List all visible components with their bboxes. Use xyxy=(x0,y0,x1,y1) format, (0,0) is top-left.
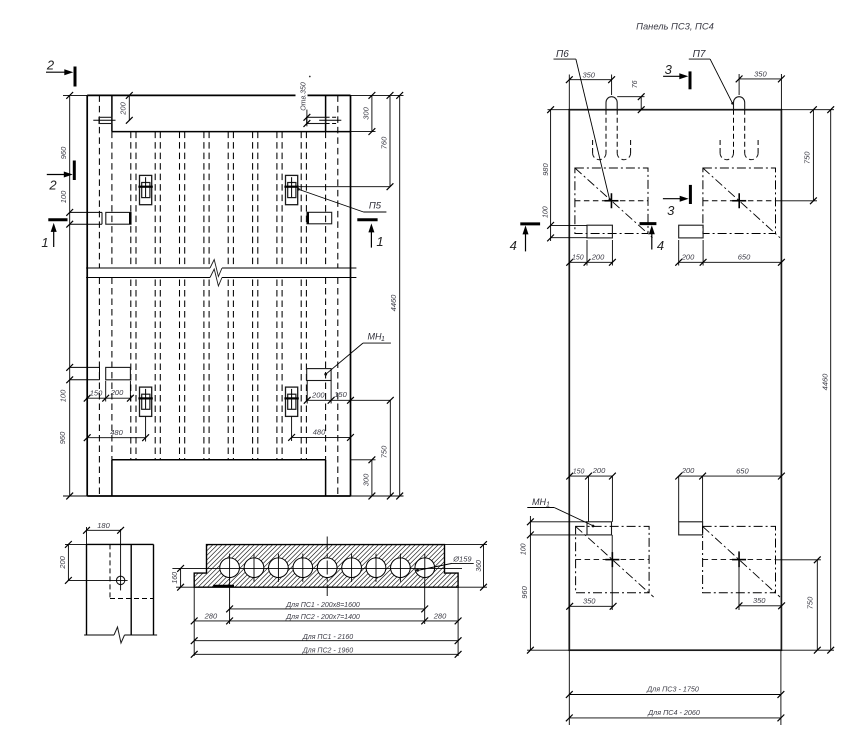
svg-text:Панель ПС3, ПС4: Панель ПС3, ПС4 xyxy=(636,20,714,31)
svg-text:180: 180 xyxy=(97,521,110,530)
svg-text:4: 4 xyxy=(657,238,664,253)
svg-text:2: 2 xyxy=(46,58,55,73)
svg-text:280: 280 xyxy=(433,612,447,621)
svg-text:300: 300 xyxy=(361,106,370,119)
svg-text:350: 350 xyxy=(583,597,596,606)
svg-text:750: 750 xyxy=(805,596,814,609)
svg-text:1: 1 xyxy=(41,235,48,250)
svg-text:76: 76 xyxy=(632,80,639,88)
svg-text:650: 650 xyxy=(738,253,751,262)
svg-text:МН: МН xyxy=(532,497,546,507)
svg-text:160: 160 xyxy=(172,572,179,584)
svg-text:200: 200 xyxy=(681,466,695,475)
svg-text:3: 3 xyxy=(665,62,673,77)
svg-text:Для ПС2 - 200х7=1400: Для ПС2 - 200х7=1400 xyxy=(285,614,360,621)
svg-text:Для ПС1 - 200х8=1600: Для ПС1 - 200х8=1600 xyxy=(285,602,360,609)
svg-text:100: 100 xyxy=(542,206,549,218)
svg-text:960: 960 xyxy=(58,431,67,444)
svg-text:480: 480 xyxy=(110,428,123,437)
svg-text:1: 1 xyxy=(376,234,383,249)
svg-text:200: 200 xyxy=(591,253,605,262)
svg-text:960: 960 xyxy=(520,585,529,598)
svg-text:П5: П5 xyxy=(369,201,382,212)
svg-text:980: 980 xyxy=(541,163,550,176)
svg-text:Ø159: Ø159 xyxy=(452,555,472,564)
svg-text:750: 750 xyxy=(802,151,811,164)
svg-text:200: 200 xyxy=(119,101,128,115)
svg-text:П6: П6 xyxy=(556,49,569,60)
svg-text:760: 760 xyxy=(379,136,388,149)
svg-text:350: 350 xyxy=(754,70,767,79)
svg-text:200: 200 xyxy=(110,388,124,397)
svg-text:Для ПС4 - 2060: Для ПС4 - 2060 xyxy=(647,708,700,717)
svg-text:Отв.350: Отв.350 xyxy=(301,82,308,111)
svg-text:200: 200 xyxy=(592,466,606,475)
svg-text:3: 3 xyxy=(667,203,675,218)
svg-text:100: 100 xyxy=(521,543,528,555)
svg-text:МН: МН xyxy=(368,332,382,342)
svg-text:100: 100 xyxy=(59,389,68,402)
svg-text:480: 480 xyxy=(313,428,326,437)
svg-text:200: 200 xyxy=(681,253,695,262)
svg-text:300: 300 xyxy=(362,473,371,486)
svg-text:750: 750 xyxy=(380,445,389,458)
svg-text:650: 650 xyxy=(736,466,749,475)
svg-text:150: 150 xyxy=(573,468,585,475)
svg-text:350: 350 xyxy=(582,70,595,79)
svg-text:2: 2 xyxy=(48,178,57,193)
svg-text:1: 1 xyxy=(546,502,550,509)
svg-text:Для ПС1 - 2160: Для ПС1 - 2160 xyxy=(302,634,353,641)
svg-text:4460: 4460 xyxy=(820,373,829,391)
svg-text:280: 280 xyxy=(204,611,218,620)
svg-text:П7: П7 xyxy=(693,49,706,60)
svg-text:100: 100 xyxy=(59,190,68,203)
svg-text:350: 350 xyxy=(753,596,766,605)
svg-text:150: 150 xyxy=(90,388,103,397)
svg-text:150: 150 xyxy=(334,390,347,399)
svg-text:4460: 4460 xyxy=(389,294,398,312)
svg-text:200: 200 xyxy=(311,390,325,399)
svg-text:200: 200 xyxy=(58,555,67,569)
svg-text:960: 960 xyxy=(59,146,68,159)
svg-text:4: 4 xyxy=(510,238,517,253)
svg-text:Для ПС2 - 1960: Для ПС2 - 1960 xyxy=(302,648,353,655)
svg-text:1: 1 xyxy=(381,336,385,343)
svg-text:150: 150 xyxy=(572,255,584,262)
svg-text:360: 360 xyxy=(476,560,483,572)
svg-text:Для ПС3 - 1750: Для ПС3 - 1750 xyxy=(646,685,699,694)
